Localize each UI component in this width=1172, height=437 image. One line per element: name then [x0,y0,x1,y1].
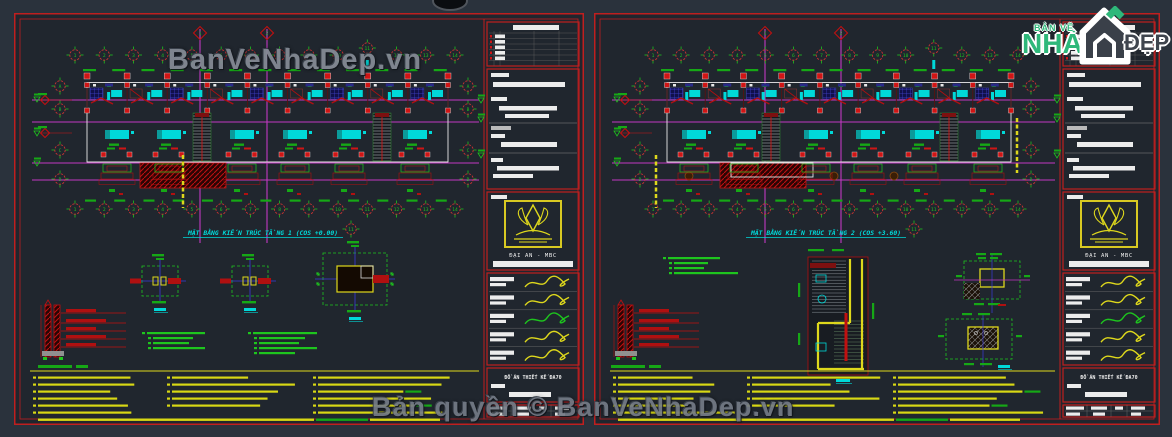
svg-text:9: 9 [876,207,879,213]
svg-text:4: 4 [161,53,164,59]
svg-text:A: A [1030,84,1033,90]
svg-text:14: 14 [452,53,458,59]
svg-text:11: 11 [931,207,937,213]
svg-text:2: 2 [103,53,106,59]
svg-text:3: 3 [132,207,135,213]
svg-text:A: A [59,84,62,90]
watermark-top: BanVeNhaDep.vn [168,44,422,77]
svg-text:1: 1 [652,53,655,59]
svg-text:2: 2 [103,207,106,213]
svg-text:2: 2 [680,53,683,59]
sheet-tang-2[interactable]: 1211223344556677889910101111121213131414… [594,13,1160,425]
svg-text:9: 9 [307,207,310,213]
brand-banve-text: BẢN VẼ [1034,23,1074,33]
svg-text:3: 3 [132,53,135,59]
svg-text:3: 3 [708,53,711,59]
svg-text:12: 12 [959,53,965,59]
svg-text:4: 4 [736,207,739,213]
svg-text:11: 11 [348,227,354,233]
svg-text:12: 12 [959,207,965,213]
svg-text:D: D [639,177,642,183]
svg-text:2: 2 [840,31,843,37]
svg-text:1: 1 [74,53,77,59]
stair [940,113,958,161]
svg-text:8: 8 [848,207,851,213]
svg-text:1: 1 [764,31,767,37]
cad-viewport[interactable]: 1211223344556677889910101111121213131414… [0,0,1172,437]
company-name: ĐẠI AN - MBC [1085,253,1133,259]
svg-text:6: 6 [792,207,795,213]
svg-text:A: A [639,84,642,90]
svg-text:14: 14 [1015,207,1021,213]
svg-text:5: 5 [191,207,194,213]
svg-text:7: 7 [820,207,823,213]
svg-text:6: 6 [220,207,223,213]
svg-text:1: 1 [199,31,202,37]
svg-text:13: 13 [987,207,993,213]
svg-text:9: 9 [876,53,879,59]
svg-text:4: 4 [736,53,739,59]
svg-text:C: C [467,148,470,154]
svg-text:7: 7 [820,53,823,59]
stair-detail [798,249,874,384]
svg-text:5: 5 [764,53,767,59]
svg-text:6: 6 [792,53,795,59]
svg-text:13: 13 [423,53,429,59]
svg-text:14: 14 [452,207,458,213]
svg-text:3: 3 [708,207,711,213]
svg-text:11: 11 [931,46,937,52]
svg-text:C: C [59,148,62,154]
svg-text:2: 2 [680,207,683,213]
svg-text:5: 5 [764,207,767,213]
svg-text:A: A [467,84,470,90]
svg-text:11: 11 [911,227,917,233]
brand-dep-text: ĐẸP [1124,30,1169,56]
svg-text:7: 7 [249,207,252,213]
svg-text:1: 1 [74,207,77,213]
doc-title: ĐỒ ÁN THIẾT KẾ ĐA70 [1080,373,1137,381]
stair [373,113,391,161]
watermark-bottom: Bản quyền © BanVeNhaDep.vn [372,392,794,423]
svg-text:10: 10 [903,53,909,59]
svg-text:B: B [1030,107,1033,113]
company-name: ĐẠI AN - MBC [509,253,557,259]
brand-logo: NHÀ BẢN VẼ ĐẸP [1018,2,1170,66]
svg-text:2: 2 [266,31,269,37]
svg-text:D: D [467,177,470,183]
svg-text:C: C [639,148,642,154]
svg-text:B: B [59,107,62,113]
svg-text:D: D [1030,177,1033,183]
svg-text:8: 8 [278,207,281,213]
svg-text:1: 1 [652,207,655,213]
stair [193,113,211,161]
svg-text:12: 12 [394,207,400,213]
sheet-title: MẶT BẰNG KIẾN TRÚC TẦNG 1 (COS +0.00) [187,228,338,237]
svg-text:11: 11 [365,207,371,213]
svg-text:10: 10 [903,207,909,213]
svg-text:D: D [59,177,62,183]
svg-text:B: B [467,107,470,113]
svg-text:13: 13 [987,53,993,59]
svg-text:B: B [639,107,642,113]
svg-text:4: 4 [161,207,164,213]
svg-text:8: 8 [848,53,851,59]
svg-text:10: 10 [335,207,341,213]
svg-text:13: 13 [423,207,429,213]
doc-title: ĐỒ ÁN THIẾT KẾ ĐA70 [504,373,561,381]
svg-text:C: C [1030,148,1033,154]
sheet-title: MẶT BẰNG KIẾN TRÚC TẦNG 2 (COS +3.60) [750,228,901,237]
stair [762,113,780,161]
cursor-artifact [433,0,467,10]
